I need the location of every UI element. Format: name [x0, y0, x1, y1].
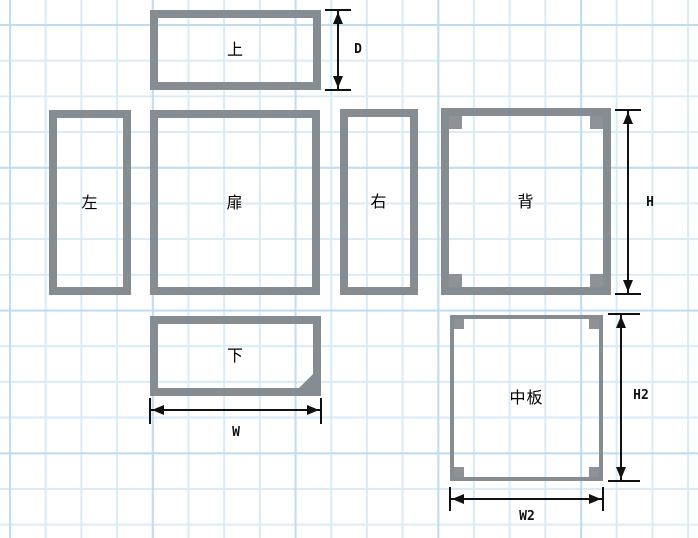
- corner-block: [589, 467, 599, 477]
- arrow-down-icon: [623, 280, 633, 292]
- dimension-line: [620, 314, 622, 481]
- dimension-height-label: H: [640, 194, 660, 212]
- panel-bottom-label: 下: [227, 348, 244, 364]
- panel-right[interactable]: 右: [340, 109, 418, 295]
- corner-block: [454, 319, 464, 329]
- arrow-right-icon: [307, 405, 319, 415]
- corner-block: [449, 116, 462, 129]
- corner-block: [449, 274, 462, 287]
- dimension-tick: [608, 480, 640, 482]
- panel-shelf-label: 中板: [509, 390, 543, 406]
- arrow-down-icon: [616, 467, 626, 479]
- arrow-left-icon: [452, 494, 464, 504]
- dimension-width-label: W: [224, 424, 248, 442]
- corner-block: [454, 467, 464, 477]
- panel-door-label: 扉: [226, 195, 243, 211]
- dimension-height: [615, 110, 641, 294]
- dimension-line: [150, 409, 321, 411]
- arrow-up-icon: [623, 112, 633, 124]
- panel-back[interactable]: 背: [441, 108, 611, 295]
- arrow-up-icon: [333, 12, 343, 24]
- dimension-tick: [320, 398, 322, 424]
- dimension-tick: [149, 398, 151, 424]
- dimension-line: [627, 110, 629, 294]
- corner-block: [589, 319, 599, 329]
- panel-door[interactable]: 扉: [150, 110, 320, 295]
- chamfer-corner: [299, 374, 313, 388]
- panel-bottom[interactable]: 下: [150, 316, 321, 396]
- dimension-depth-label: D: [348, 41, 368, 59]
- corner-block: [590, 116, 603, 129]
- panel-back-label: 背: [517, 194, 534, 210]
- dimension-line: [450, 498, 603, 500]
- dimension-width: [150, 398, 321, 424]
- arrow-left-icon: [152, 405, 164, 415]
- corner-block: [590, 274, 603, 287]
- dimension-tick: [608, 313, 640, 315]
- dimension-shelf-height-label: H2: [627, 387, 655, 405]
- arrow-right-icon: [589, 494, 601, 504]
- panel-left[interactable]: 左: [49, 110, 131, 295]
- panel-top[interactable]: 上: [150, 10, 321, 90]
- panel-shelf[interactable]: 中板: [450, 315, 603, 481]
- arrow-up-icon: [616, 316, 626, 328]
- panel-layout-canvas: 上 左 扉 右 背 下 中板 D: [0, 0, 698, 538]
- panel-right-label: 右: [370, 194, 387, 210]
- arrow-down-icon: [333, 76, 343, 88]
- dimension-shelf-width-label: W2: [513, 508, 541, 526]
- panel-top-label: 上: [227, 42, 244, 58]
- panel-left-label: 左: [81, 195, 98, 211]
